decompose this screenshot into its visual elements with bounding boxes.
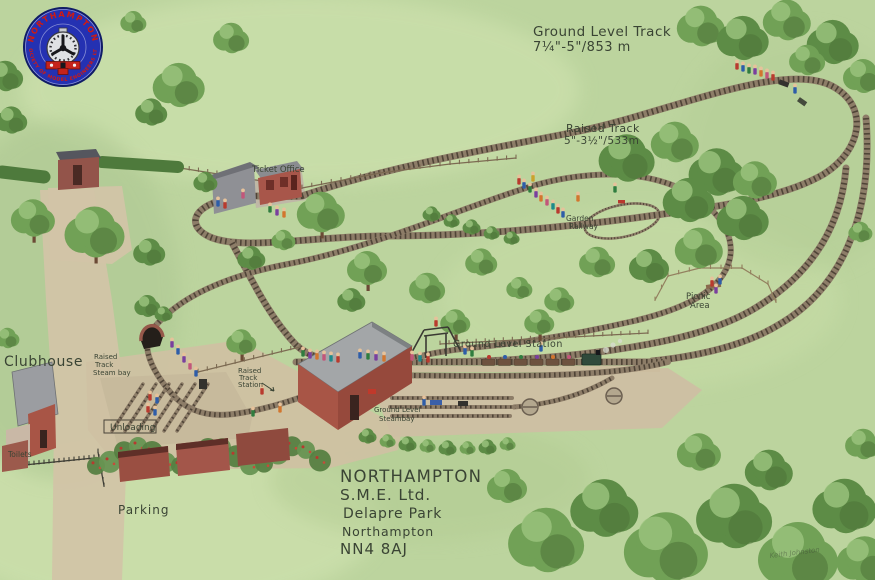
label-toilets: Toilets	[7, 450, 32, 459]
tree-light	[422, 440, 428, 446]
tree-shade	[490, 232, 497, 239]
person	[153, 406, 157, 416]
person-body	[561, 211, 564, 218]
person-head	[551, 200, 555, 204]
label-clubhouse: Clubhouse	[4, 354, 83, 370]
person-head	[216, 197, 220, 201]
rider	[551, 355, 555, 359]
person-body	[182, 356, 185, 363]
hedge-flower	[106, 457, 109, 460]
person-head	[539, 192, 543, 196]
tree-shade	[406, 443, 414, 451]
label-raised-track-length: 5"-3½"/533m	[564, 135, 639, 147]
person	[793, 84, 797, 94]
person-head	[275, 206, 279, 210]
person-body	[278, 406, 281, 413]
address-line-1: NORTHAMPTON	[340, 467, 482, 486]
person	[146, 403, 150, 413]
steam-locomotive	[582, 354, 601, 365]
park-map: Ground Level Track 7¼"-5"/853 m Raised T…	[0, 0, 875, 580]
hedge-flower	[267, 464, 270, 467]
tree-shade	[450, 220, 457, 227]
person	[308, 349, 312, 359]
person	[216, 197, 220, 207]
tree-shade	[430, 213, 438, 221]
person-head	[753, 65, 757, 69]
person-head	[710, 277, 714, 281]
label-parking: Parking	[118, 503, 170, 517]
person	[410, 351, 414, 361]
person-body	[710, 280, 713, 287]
person-head	[522, 179, 526, 183]
tree-light	[853, 223, 863, 233]
tree-light	[19, 202, 37, 220]
person-body	[545, 199, 548, 206]
person	[278, 403, 282, 413]
person-body	[765, 72, 768, 79]
tree-shade	[175, 81, 198, 104]
person-head	[771, 71, 775, 75]
person-head	[146, 403, 150, 407]
tree-light	[816, 23, 837, 44]
person-head	[531, 172, 535, 176]
label-ticket-office: Ticket Office	[251, 165, 305, 175]
person-body	[434, 320, 437, 327]
person-head	[517, 175, 521, 179]
person-head	[194, 367, 198, 371]
tree-shade	[765, 466, 787, 488]
person-head	[545, 196, 549, 200]
person-head	[793, 84, 797, 88]
tree-shade	[366, 435, 374, 443]
tree-shade	[506, 443, 513, 450]
tree-shade	[739, 34, 762, 57]
tree-shade	[239, 340, 253, 354]
tree-light	[415, 275, 429, 289]
hedge-bush	[309, 450, 331, 472]
tree-shade	[317, 208, 339, 230]
tree-shade	[2, 73, 18, 89]
tree-light	[462, 442, 468, 448]
person-body	[282, 211, 285, 218]
bottom-shed-3	[236, 428, 290, 466]
person	[322, 351, 326, 361]
tree-shade	[204, 180, 215, 191]
hedge-flower	[113, 463, 116, 466]
person	[301, 347, 305, 357]
person-body	[613, 186, 616, 193]
tree-light	[683, 230, 702, 249]
tree-light	[685, 8, 704, 27]
person-body	[308, 352, 311, 359]
person-head	[153, 406, 157, 410]
person-head	[718, 275, 722, 279]
tree-light	[582, 483, 609, 510]
tree-shade	[228, 35, 244, 51]
tree-shade	[685, 196, 708, 219]
person	[741, 62, 745, 72]
tree-light	[685, 436, 703, 454]
tree-shade	[349, 298, 362, 311]
hedge-flower	[120, 447, 123, 450]
person	[268, 203, 272, 213]
tree-light	[636, 251, 652, 267]
person-body	[216, 200, 219, 207]
train-coach	[530, 359, 543, 366]
person	[315, 350, 319, 360]
label-raised-steambay-3: Steam bay	[93, 369, 131, 377]
station-building-door	[350, 395, 359, 420]
person	[223, 199, 227, 209]
tree-shade	[739, 214, 762, 237]
address-line-5: NN4 8AJ	[340, 540, 408, 558]
person-head	[741, 62, 745, 66]
person-body	[374, 354, 377, 361]
person-head	[176, 345, 180, 349]
tree-shade	[829, 38, 852, 61]
label-ground-level-station: Ground Level Station	[453, 339, 563, 350]
person-body	[747, 67, 750, 74]
hedge-northwest	[2, 172, 44, 177]
tree-shade	[282, 238, 293, 249]
label-garden-railway-2: Railway	[569, 222, 599, 231]
tree-light	[494, 471, 510, 487]
train-coach	[546, 359, 559, 366]
person	[531, 172, 535, 182]
rider	[567, 355, 571, 359]
person-head	[170, 338, 174, 342]
person-body	[315, 353, 318, 360]
tree-light	[162, 66, 183, 87]
person-body	[268, 206, 271, 213]
tree-shade	[622, 154, 647, 179]
person	[155, 394, 159, 404]
person	[336, 353, 340, 363]
person-body	[358, 352, 361, 359]
steam-puff	[610, 342, 615, 347]
tree-light	[446, 311, 458, 323]
steambay-loco-blue	[430, 400, 442, 405]
person	[275, 206, 279, 216]
person	[556, 204, 560, 214]
person	[176, 345, 180, 355]
train-coach	[482, 359, 495, 366]
tree-light	[850, 61, 866, 77]
person	[747, 64, 751, 74]
tree-shade	[537, 320, 551, 334]
rider	[535, 355, 539, 359]
tree-light	[232, 331, 244, 343]
tree-shade	[470, 226, 478, 234]
tree-light	[846, 539, 868, 561]
tree-shade	[426, 445, 433, 452]
tree-shade	[9, 118, 23, 132]
tree-shade	[131, 20, 143, 32]
tree-light	[659, 124, 678, 143]
person	[710, 277, 714, 287]
person-head	[382, 352, 386, 356]
person-body	[153, 409, 156, 416]
person-body	[410, 354, 413, 361]
person-body	[539, 195, 542, 202]
tree-light	[276, 231, 286, 241]
tree-shade	[424, 285, 440, 301]
person-head	[366, 350, 370, 354]
label-picnic-area-2: Area	[690, 301, 710, 311]
person-body	[418, 355, 421, 362]
person-body	[155, 397, 158, 404]
person-head	[188, 360, 192, 364]
tree-shade	[671, 138, 693, 160]
person-body	[336, 356, 339, 363]
tree-light	[354, 253, 370, 269]
person-body	[366, 353, 369, 360]
tree-light	[198, 173, 208, 183]
person	[251, 407, 255, 417]
person-head	[759, 67, 763, 71]
person-head	[282, 208, 286, 212]
person-head	[308, 349, 312, 353]
person	[434, 317, 438, 327]
tree-shade	[486, 446, 494, 454]
person-head	[278, 403, 282, 407]
tree-shade	[90, 228, 117, 255]
label-raised-station-3: Station	[238, 381, 263, 389]
tree-light	[482, 440, 489, 447]
tree-shade	[594, 259, 610, 275]
person-body	[194, 370, 197, 377]
person-body	[301, 350, 304, 357]
person	[329, 352, 333, 362]
tree-light	[75, 210, 99, 234]
person-head	[374, 351, 378, 355]
person-head	[336, 353, 340, 357]
person-body	[534, 191, 537, 198]
person	[714, 284, 718, 294]
person	[282, 208, 286, 218]
rider	[487, 355, 491, 359]
person-head	[148, 391, 152, 395]
hedge-flower	[323, 461, 326, 464]
tree-light	[1, 108, 14, 121]
tree-light	[442, 441, 449, 448]
hedge-by-shed	[102, 162, 178, 167]
person-head	[268, 203, 272, 207]
shed-door	[73, 165, 82, 185]
hedge-flower	[302, 445, 305, 448]
tree-shade	[599, 503, 630, 534]
person-body	[556, 207, 559, 214]
address-line-4: Northampton	[342, 524, 434, 539]
person-body	[329, 355, 332, 362]
tree-shade	[249, 256, 262, 269]
hedge-flower	[316, 456, 319, 459]
label-raised-track: Raised Track	[566, 122, 640, 135]
tree-shade	[660, 542, 698, 580]
tree-shade	[517, 286, 529, 298]
person	[374, 351, 378, 361]
tree-shade	[646, 263, 664, 281]
hedge-flower	[253, 466, 256, 469]
tree-shade	[386, 440, 393, 447]
label-unloading: Unloading	[110, 423, 155, 433]
person-body	[382, 355, 385, 362]
person-body	[148, 394, 151, 401]
person	[765, 69, 769, 79]
tree-light	[726, 199, 747, 220]
person-head	[418, 352, 422, 356]
label-ground-level-track: Ground Level Track	[533, 24, 671, 40]
raised-loco	[199, 379, 207, 389]
tree-light	[466, 220, 473, 227]
person	[182, 353, 186, 363]
person	[148, 391, 152, 401]
steam-puff	[618, 339, 622, 343]
tree-light	[158, 307, 165, 314]
person-body	[223, 202, 226, 209]
person-body	[576, 195, 579, 202]
person-body	[714, 287, 717, 294]
person	[771, 71, 775, 81]
person-head	[301, 347, 305, 351]
train-coach	[562, 359, 575, 366]
person	[718, 275, 722, 285]
person-body	[522, 182, 525, 189]
locomotive-chimney	[596, 350, 600, 355]
garden-railway-loco	[618, 200, 625, 203]
person-body	[241, 192, 244, 199]
person	[422, 396, 426, 406]
person-body	[793, 87, 796, 94]
tree-light	[639, 517, 673, 551]
hedge-flower	[134, 442, 137, 445]
person-head	[765, 69, 769, 73]
tree-light	[141, 100, 154, 113]
person	[358, 349, 362, 359]
person	[418, 352, 422, 362]
tree-light	[672, 181, 693, 202]
person-body	[718, 278, 721, 285]
steam-puff	[603, 347, 609, 353]
tree-light	[125, 12, 135, 22]
person	[188, 360, 192, 370]
person-body	[188, 363, 191, 370]
person-body	[322, 354, 325, 361]
tree-light	[471, 250, 484, 263]
tree-light	[219, 25, 233, 39]
person-body	[753, 68, 756, 75]
tree-light	[741, 164, 759, 182]
steambay-loco-dark	[458, 401, 468, 406]
person-body	[170, 341, 173, 348]
person-body	[517, 178, 520, 185]
person-head	[561, 208, 565, 212]
person-head	[410, 351, 414, 355]
tree-light	[0, 329, 9, 339]
person-head	[534, 188, 538, 192]
tree-shade	[695, 244, 717, 266]
train-coach	[514, 359, 527, 366]
person	[517, 175, 521, 185]
person	[545, 196, 549, 206]
tree-light	[486, 227, 492, 233]
person-body	[741, 65, 744, 72]
tree-light	[506, 232, 512, 238]
person-head	[434, 317, 438, 321]
person-head	[528, 183, 532, 187]
tree-light	[362, 429, 369, 436]
tree-light	[585, 249, 599, 263]
person-head	[576, 192, 580, 196]
person-head	[358, 349, 362, 353]
hedge-flower	[232, 452, 235, 455]
tree-shade	[479, 260, 493, 274]
person	[534, 188, 538, 198]
tree-light	[771, 2, 790, 21]
person-head	[714, 284, 718, 288]
tree-light	[426, 207, 433, 214]
person-head	[422, 396, 426, 400]
rider	[519, 355, 523, 359]
tree-light	[446, 215, 452, 221]
tunnel	[141, 326, 163, 349]
tree-light	[851, 431, 865, 445]
person-body	[531, 175, 534, 182]
tree-light	[502, 438, 508, 444]
person-body	[735, 63, 738, 70]
person-head	[329, 352, 333, 356]
tree-light	[139, 240, 152, 253]
label-ground-steambay-2: Steambay	[379, 415, 414, 423]
person	[522, 179, 526, 189]
person-head	[223, 199, 227, 203]
ticket-office-door	[291, 175, 297, 190]
person-head	[315, 350, 319, 354]
train-coach	[498, 359, 511, 366]
person	[170, 338, 174, 348]
label-ground-steambay-1: Ground Level	[374, 406, 421, 414]
tree-shade	[162, 313, 170, 321]
tree-light	[550, 289, 562, 301]
person-head	[182, 353, 186, 357]
person	[366, 350, 370, 360]
person	[735, 60, 739, 70]
tree-light	[139, 296, 149, 306]
ticket-office-window-2	[280, 177, 288, 187]
person-body	[251, 410, 254, 417]
tree-shade	[557, 298, 571, 312]
station-building-sign	[368, 389, 376, 394]
tree-light	[511, 278, 521, 288]
tree-shade	[752, 177, 772, 197]
person-body	[551, 203, 554, 210]
person-body	[759, 70, 762, 77]
tree-light	[305, 194, 324, 213]
person	[753, 65, 757, 75]
person	[194, 367, 198, 377]
person-head	[735, 60, 739, 64]
tree-shade	[859, 230, 870, 241]
person-head	[747, 64, 751, 68]
person-head	[241, 189, 245, 193]
person-body	[426, 356, 429, 363]
person	[528, 183, 532, 193]
tree-light	[342, 290, 353, 301]
tree-shade	[30, 215, 50, 235]
tree-light	[521, 512, 551, 542]
hedge-flower	[295, 447, 298, 450]
tree-shade	[149, 110, 163, 124]
